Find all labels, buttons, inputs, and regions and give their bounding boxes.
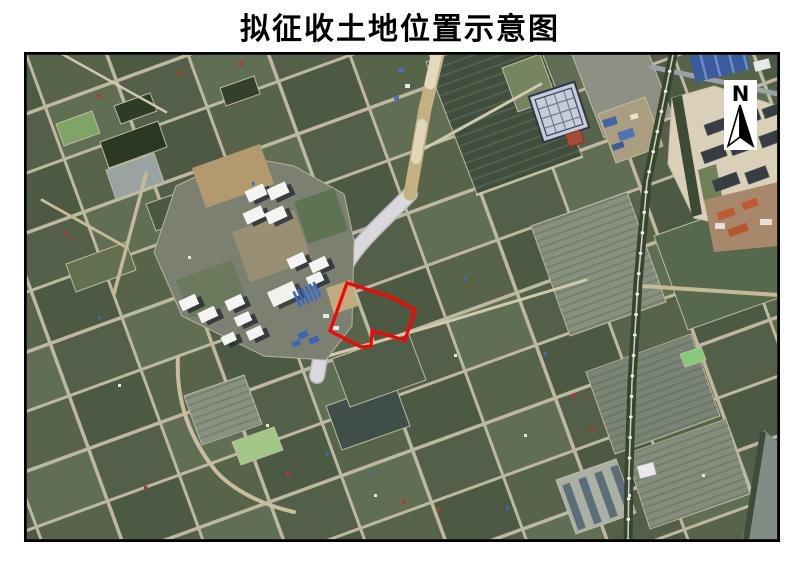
north-arrow: N xyxy=(724,80,757,150)
land-acquisition-map-page: 拟征收土地位置示意图 xyxy=(0,0,800,566)
satellite-image: N xyxy=(26,54,778,540)
north-label: N xyxy=(732,82,750,106)
page-title: 拟征收土地位置示意图 xyxy=(0,4,800,48)
satellite-map: N xyxy=(24,52,780,542)
